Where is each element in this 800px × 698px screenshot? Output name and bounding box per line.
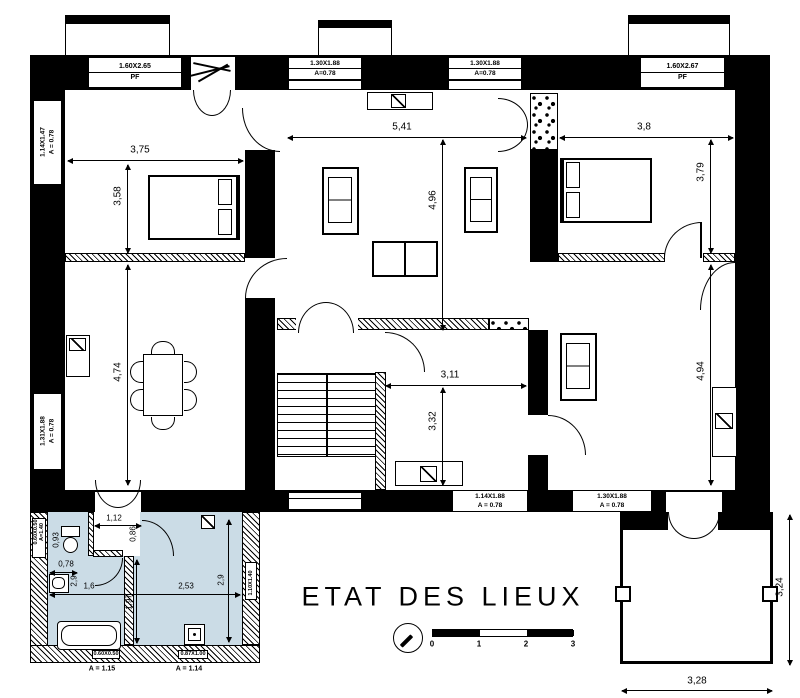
chimney-left-cap [65,15,170,24]
dim-label: 3,11 [441,370,460,381]
wall-living-bedroom2 [530,150,558,262]
wall-bedroom1-right-upper [245,150,275,258]
window-size-label: 1.30X1.88 [449,59,521,68]
dim-line-living-height [442,140,443,330]
dim-label: 3,32 [428,411,439,430]
window-top-right: 1.60X2.67 PF [640,57,725,88]
chimney-mid [318,20,392,56]
chimney-right [628,15,730,56]
coffee-table [372,241,438,277]
dim-label: 3,24 [775,577,786,596]
window-note-label: A=1.40 [39,523,45,541]
armchair-cushions [566,343,590,389]
window-note-label: A=0.78 [449,68,521,78]
window-bottom-right: 1.30X1.88 A = 0.78 [572,490,652,512]
window-size-label: 1.14X1.88 [453,492,527,501]
dim-label: 4,94 [696,361,707,380]
door-arc-hall-to-sitting [548,415,586,455]
wall-bottom [30,490,770,512]
dining-chair [151,417,175,430]
window-size-label: 1.30X1.88 [289,59,361,68]
dining-chair [130,361,143,383]
window-note-label: A = 0.78 [49,130,56,155]
window-note-label: A = 0.78 [453,501,527,510]
armchair-cushions [328,177,352,223]
north-needle [400,634,413,647]
scale-tick-label: 1 [477,640,481,649]
window-glazing-line [289,498,361,499]
terrace-wall-top-right [718,512,773,530]
shower-tray [184,624,205,645]
radiator-hall-valve [420,466,437,482]
dim-label: 2,53 [178,582,194,591]
dim-line-sitting-height [710,265,711,485]
door-arc-entry-to-living [242,108,280,152]
window-note-label: A = 1.15 [89,666,115,673]
door-arc-bedroom1 [245,258,287,298]
dining-chair [151,341,175,354]
bed-bedroom2 [560,158,652,223]
dim-label: 0,93 [52,532,61,548]
scale-segment-white [480,630,527,636]
window-size-label: 1.60X2.67 [641,62,724,73]
wall-dining-right [245,298,275,490]
chimney-right-cap [628,15,730,24]
dining-chair [184,389,197,411]
door-arc-hall-right-leaf [326,302,354,333]
window-size-label: 1.31X1.88 [40,416,47,446]
dim-line-bedroom2-width [560,137,733,138]
partition-bedroom1-dining [65,253,245,262]
window-note-label: A=0.78 [289,68,361,78]
door-arc-hall-left-leaf [298,302,326,333]
stone-pier-living [530,93,558,150]
dim-label: 3,75 [130,145,149,156]
window-left-lower [33,393,62,470]
sink-basin [52,577,65,589]
pillow [218,209,232,235]
pillow [566,162,580,188]
armchair-cushions [470,177,492,222]
dim-line-hall-height [442,388,443,485]
scale-tick-label: 2 [524,640,528,649]
dim-label: 4,74 [113,362,124,381]
door-arc-bedroom2 [664,222,702,258]
pillow [566,192,580,218]
north-symbol [393,623,423,653]
window-top-mid-right-sill [448,80,522,90]
dim-label: 1,12 [106,514,122,523]
dim-label: 3,58 [113,186,124,205]
door-arc-sitting-room [700,262,735,310]
opening-terrace-door [666,492,722,512]
dim-label: 3,28 [687,676,706,687]
window-note-label: A = 0.78 [573,501,651,510]
radiator-dining-valve [69,338,86,351]
window-top-left: 1.60X2.65 PF [88,57,182,88]
window-size-label: 1.60X2.65 [89,62,181,73]
drawing-title: ETAT DES LIEUX [301,582,584,613]
dim-label: 3,8 [637,122,651,133]
partition-bedroom2-right [703,253,735,262]
stone-pier-hall [489,318,529,330]
dim-line-bedroom2-height [710,140,711,253]
dim-line-bedroom1-height [127,165,128,253]
dim-line-bath-mid [136,560,137,643]
armchair-sitting-room [560,333,597,401]
window-size-label: 0.60X0.50 [93,651,118,657]
dim-label: 0,86 [129,526,138,542]
annex-lobby-wall-bottom [93,550,123,557]
dim-line-bath-main [50,594,240,595]
floor-plan: 1.60X2.65 PF 1.30X1.88 A=0.78 1.30X1.88 … [0,0,800,698]
bathtub-inner [61,625,117,646]
window-note-label: A = 1.14 [176,666,202,673]
dim-line-dining-height [127,265,128,485]
scale-segment-black [527,630,574,636]
dim-line-hall-width [386,385,526,386]
window-note-label: PF [641,72,724,84]
window-size-label: 1.14X1.47 [40,127,47,157]
door-arc-living-upper-leaf [498,98,528,125]
door-arc-terrace-left-leaf [668,512,694,539]
armchair-living-left [322,167,359,235]
window-top-mid-right: 1.30X1.88 A=0.78 [448,57,522,80]
terrace-post-left [615,586,631,602]
dim-label: 5,41 [392,122,411,133]
window-note-label: PF [89,72,181,84]
scale-tick-label: 0 [430,640,434,649]
dim-label: 2,9 [70,575,79,586]
scale-segment-black [433,630,480,636]
dim-line-bath-right [228,520,229,642]
vent-window-shower-room [201,515,215,529]
door-arc-hall-east [385,332,425,372]
pillow [218,179,232,205]
door-leaf-bedroom2 [700,222,702,258]
dim-label: 1,6 [83,582,94,591]
terrace-wall-bottom [620,661,773,664]
bed-bedroom1 [148,175,240,240]
dim-label: 4,96 [428,190,439,209]
dim-line-bath-wc [50,572,77,573]
window-bottom-hall [288,492,362,510]
dim-line-living-width [288,137,526,138]
dim-label: 2,9 [217,574,226,585]
shower-drain [193,633,196,636]
wall-hall-right-upper [528,330,548,415]
dim-line-terrace-width [622,690,772,691]
staircase-rail [326,374,328,456]
window-top-mid-left-sill [288,80,362,90]
wall-stairs-right [375,372,386,490]
terrace-wall-top-left [620,512,668,530]
window-bottom-center: 1.14X1.88 A = 0.78 [452,490,528,512]
door-arc-entrance-left-leaf [193,90,212,116]
staircase [277,373,376,457]
toilet-tank [61,526,80,537]
door-arc-entrance-right-leaf [212,90,231,116]
window-size-label: 0.87X1.00 [180,651,205,657]
dining-chair [184,361,197,383]
partition-bedroom2-left [558,253,665,262]
window-note-label: A = 0.78 [49,419,56,444]
radiator-sitting-valve [715,413,733,429]
toilet-bowl [63,537,78,553]
door-arc-terrace-right-leaf [694,512,720,539]
armchair-living-right [464,167,498,233]
dim-label: 3,79 [696,162,707,181]
sink [49,574,69,593]
wall-right [735,55,770,512]
window-left-upper [33,100,62,185]
window-top-mid-left: 1.30X1.88 A=0.78 [288,57,362,80]
dim-line-terrace-height [789,515,790,665]
dim-line-bedroom1-width [68,160,243,161]
window-size-label: 1.30X1.88 [573,492,651,501]
chimney-mid-cap [318,20,392,28]
dim-label: 1,97 [125,594,134,610]
dining-chair [130,389,143,411]
scale-tick-label: 3 [571,640,575,649]
window-size-label: 1.10X1.40 [248,570,254,595]
dining-table [143,354,183,416]
scale-bar [432,629,573,637]
wall-hall-right-lower [528,455,548,490]
dim-label: 0,78 [58,560,74,569]
radiator-living-valve [391,94,406,108]
chimney-left [65,15,170,56]
bathtub [57,621,121,650]
